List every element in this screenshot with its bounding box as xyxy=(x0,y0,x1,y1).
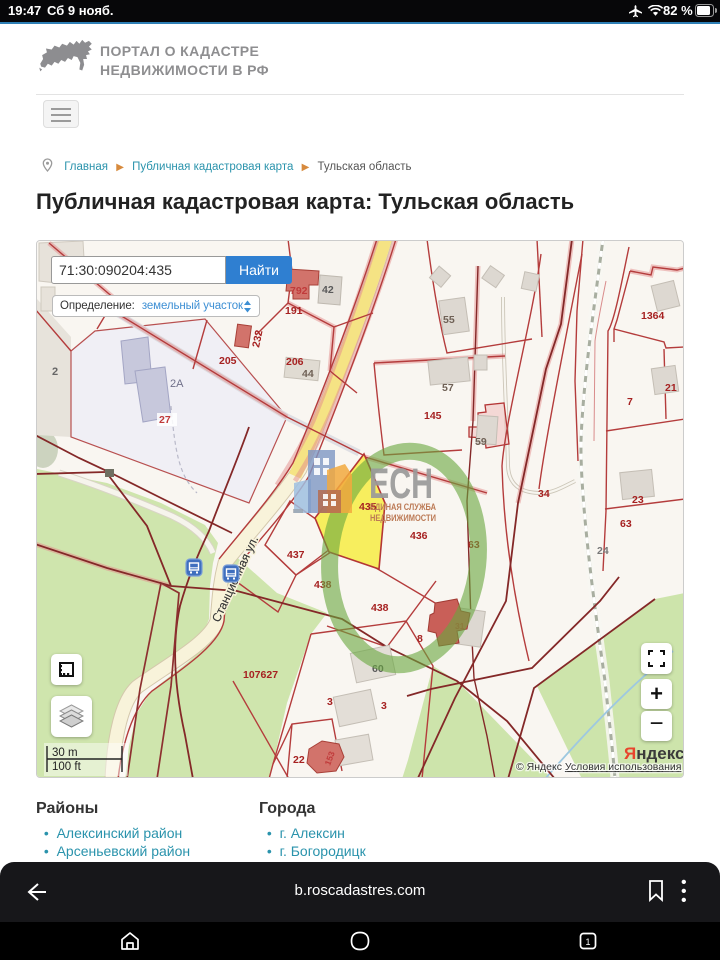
svg-text:3: 3 xyxy=(327,696,333,708)
svg-text:7: 7 xyxy=(627,396,633,408)
svg-text:2: 2 xyxy=(52,366,58,378)
svg-text:63: 63 xyxy=(620,518,632,530)
svg-text:2A: 2A xyxy=(170,378,184,390)
svg-text:НЕДВИЖИМОСТИ: НЕДВИЖИМОСТИ xyxy=(370,513,436,523)
svg-text:436: 436 xyxy=(410,530,428,542)
svg-text:42: 42 xyxy=(322,284,334,296)
svg-text:30 m: 30 m xyxy=(52,747,78,759)
svg-text:44: 44 xyxy=(302,368,314,380)
svg-text:437: 437 xyxy=(287,549,305,561)
svg-text:100 ft: 100 ft xyxy=(52,761,82,773)
svg-text:206: 206 xyxy=(286,356,304,368)
svg-text:22: 22 xyxy=(293,754,305,766)
svg-text:438: 438 xyxy=(371,602,389,614)
svg-text:ЕДИНАЯ СЛУЖБА: ЕДИНАЯ СЛУЖБА xyxy=(370,502,436,512)
svg-text:34: 34 xyxy=(538,488,550,500)
svg-text:24: 24 xyxy=(597,545,609,557)
svg-text:27: 27 xyxy=(159,414,171,426)
svg-text:8: 8 xyxy=(417,633,423,645)
svg-text:21: 21 xyxy=(665,382,677,394)
svg-text:1364: 1364 xyxy=(641,310,665,322)
svg-text:59: 59 xyxy=(475,436,487,448)
svg-text:205: 205 xyxy=(219,355,237,367)
svg-text:145: 145 xyxy=(424,410,442,422)
svg-text:3: 3 xyxy=(381,700,387,712)
svg-text:ЕСН: ЕСН xyxy=(369,460,433,508)
svg-text:23: 23 xyxy=(632,494,644,506)
svg-text:792: 792 xyxy=(290,285,308,297)
svg-text:107627: 107627 xyxy=(243,669,278,681)
svg-text:191: 191 xyxy=(285,305,303,317)
svg-text:1: 1 xyxy=(585,937,590,947)
svg-text:© Яндекс Условия использовани: © Яндекс Условия использования xyxy=(516,761,681,773)
svg-text:57: 57 xyxy=(442,382,454,394)
svg-text:55: 55 xyxy=(443,314,455,326)
